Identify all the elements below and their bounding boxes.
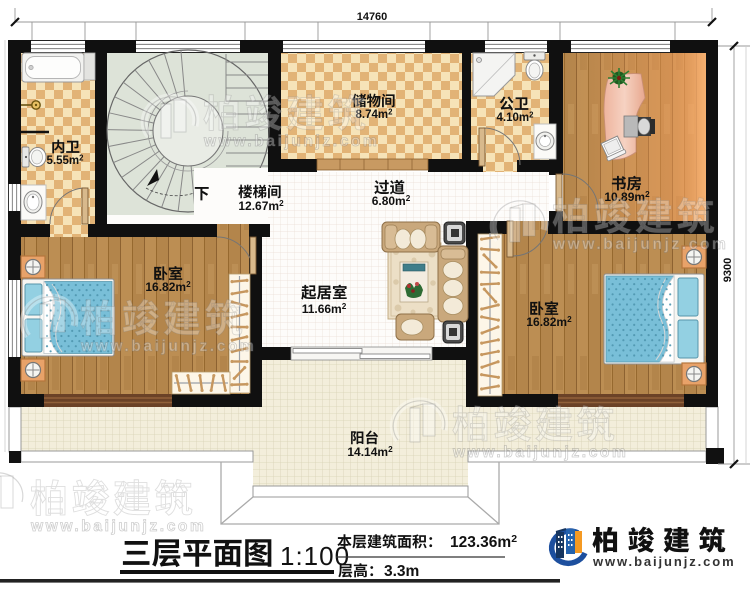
- svg-text:14760: 14760: [357, 11, 388, 23]
- svg-text:www.baijunjz.com: www.baijunjz.com: [203, 133, 379, 150]
- svg-text:1:100: 1:100: [280, 541, 350, 571]
- svg-text:www.baijunjz.com: www.baijunjz.com: [452, 444, 628, 461]
- svg-text:123.36m2: 123.36m2: [450, 533, 517, 551]
- svg-text:14.14m2: 14.14m2: [347, 445, 393, 459]
- svg-text:4.10m2: 4.10m2: [497, 110, 535, 124]
- svg-text:9300: 9300: [722, 258, 734, 282]
- svg-text:11.66m2: 11.66m2: [302, 302, 347, 316]
- svg-text:www.baijunjz.com: www.baijunjz.com: [552, 236, 728, 253]
- svg-text:6.80m2: 6.80m2: [372, 194, 411, 208]
- svg-text:www.baijunjz.com: www.baijunjz.com: [592, 554, 736, 569]
- svg-text:5.55m2: 5.55m2: [47, 153, 85, 167]
- svg-text:3.3m: 3.3m: [384, 563, 419, 580]
- svg-text:8.74m2: 8.74m2: [356, 107, 394, 121]
- svg-text:12.67m2: 12.67m2: [238, 199, 284, 213]
- svg-text:www.baijunjz.com: www.baijunjz.com: [80, 338, 256, 355]
- svg-text:16.82m2: 16.82m2: [145, 280, 191, 294]
- svg-text:www.baijunjz.com: www.baijunjz.com: [30, 518, 206, 535]
- svg-text:16.82m2: 16.82m2: [526, 315, 572, 329]
